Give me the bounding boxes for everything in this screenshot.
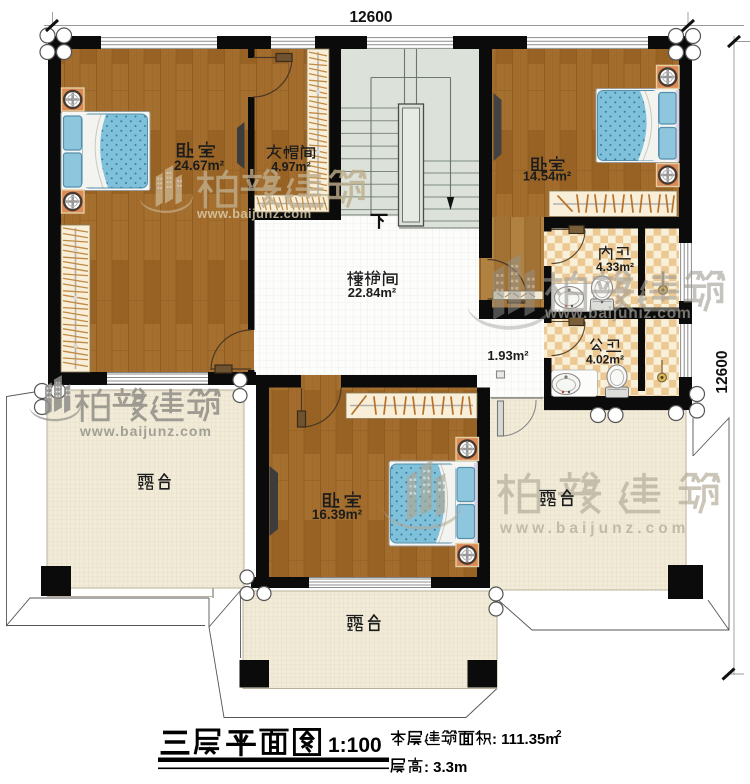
svg-text:24.67m²: 24.67m²: [174, 158, 225, 173]
svg-text:4.97m²: 4.97m²: [271, 160, 311, 174]
svg-text:16.39m²: 16.39m²: [312, 507, 363, 522]
svg-text:: 111.35m: : 111.35m: [492, 731, 559, 748]
svg-text:22.84m²: 22.84m²: [348, 285, 397, 300]
svg-text:www.baijuniz.com: www.baijuniz.com: [544, 305, 692, 322]
svg-text:1:100: 1:100: [328, 734, 382, 757]
svg-text:www.baijunz.com: www.baijunz.com: [79, 423, 212, 439]
svg-text:4.33m²: 4.33m²: [596, 260, 634, 274]
svg-text:www.baijunz.com: www.baijunz.com: [499, 520, 689, 537]
svg-text:4.02m²: 4.02m²: [586, 353, 624, 367]
svg-text:: 3.3m: : 3.3m: [424, 759, 467, 776]
svg-text:1.93m²: 1.93m²: [487, 348, 529, 363]
svg-text:12600: 12600: [714, 350, 731, 393]
svg-text:2: 2: [556, 729, 562, 740]
svg-text:12600: 12600: [349, 9, 392, 26]
svg-text:14.54m²: 14.54m²: [523, 169, 572, 184]
svg-text:www.baijunz.com: www.baijunz.com: [196, 206, 312, 221]
